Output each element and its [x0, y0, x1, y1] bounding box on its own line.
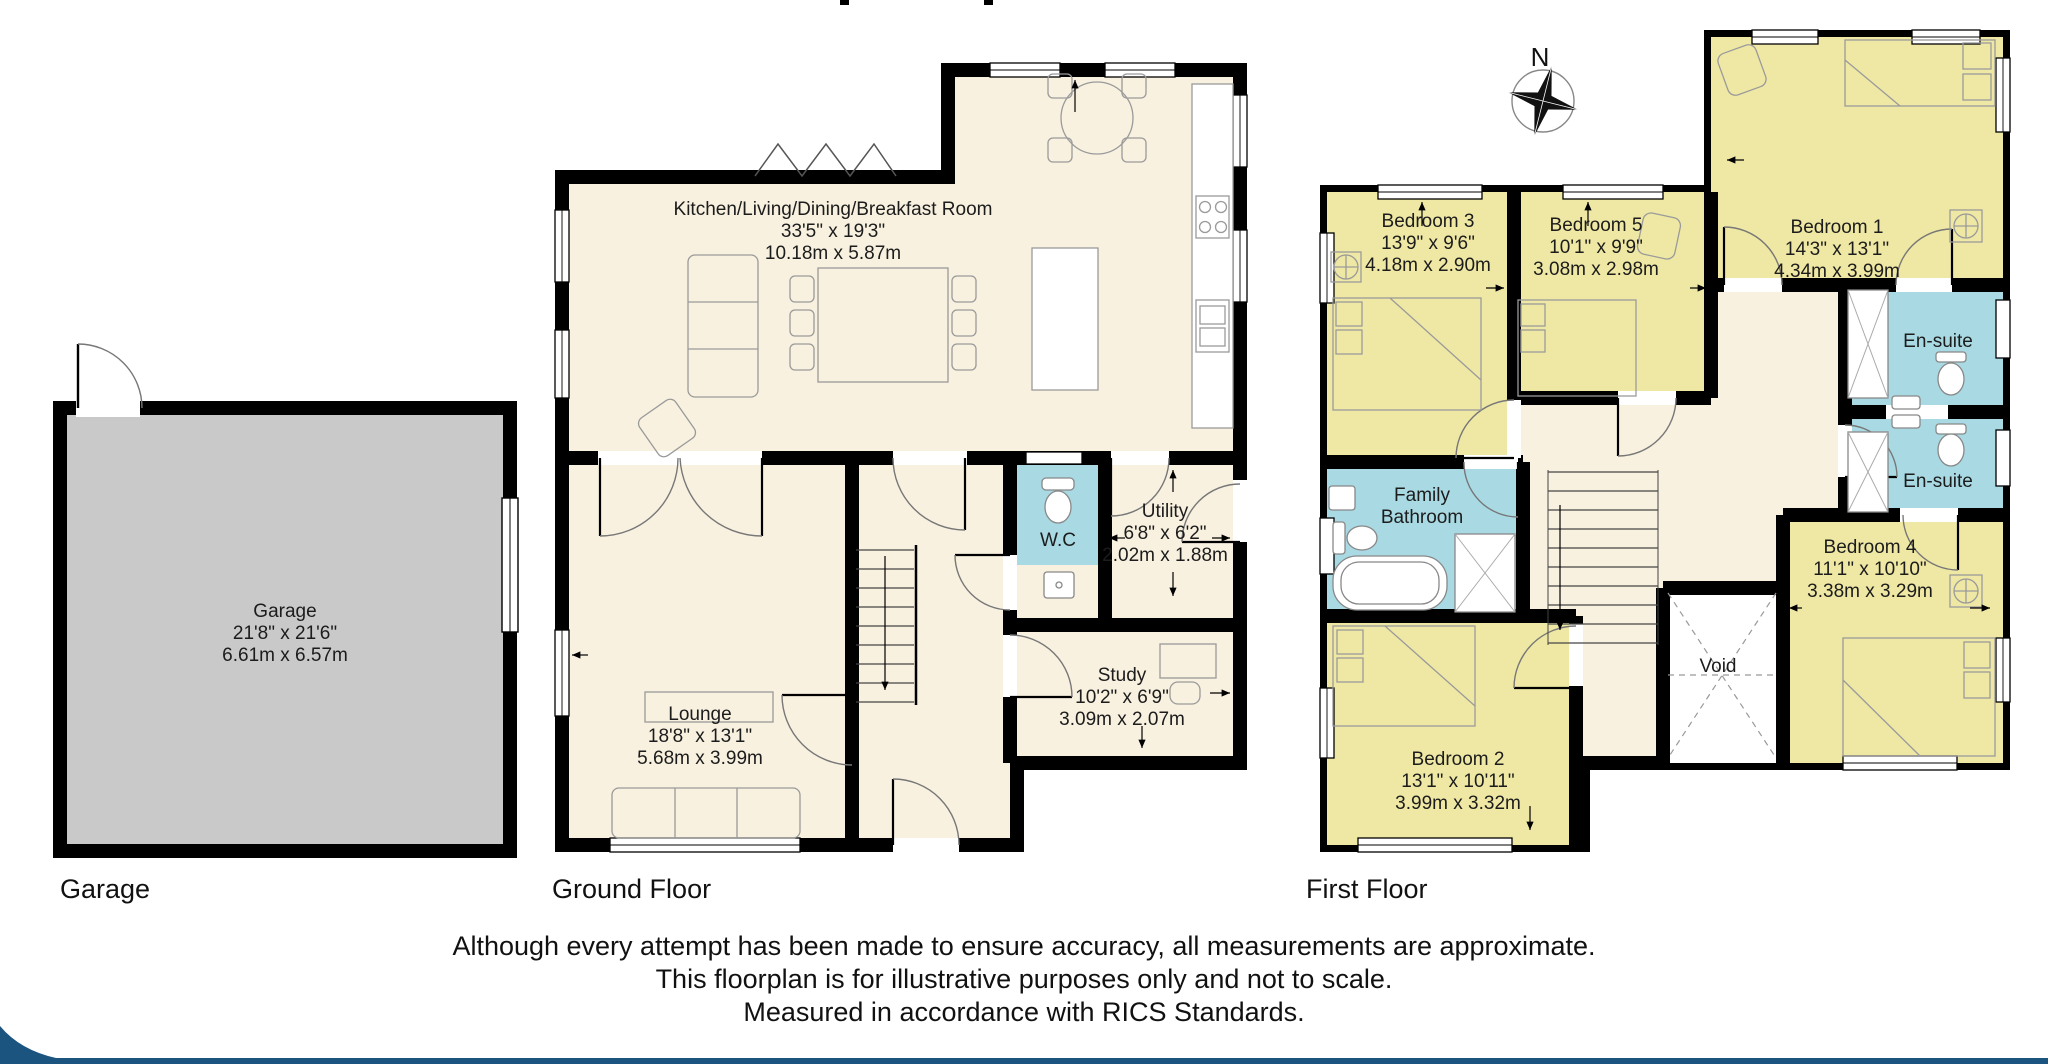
wc-room-label: W.C: [1040, 530, 1076, 552]
room-dims-imperial: 13'1" x 10'11": [1395, 771, 1521, 793]
room-name: Bedroom 5: [1533, 215, 1659, 237]
first-floor-plan: [1320, 30, 2010, 852]
bedroom2-room-label: Bedroom 2 13'1" x 10'11" 3.99m x 3.32m: [1395, 749, 1521, 815]
bedroom1-room-label: Bedroom 1 14'3" x 13'1" 4.34m x 3.99m: [1774, 217, 1900, 283]
ensuite-top-room-label: En-suite: [1903, 331, 1973, 353]
room-dims-imperial: 10'2" x 6'9": [1059, 687, 1185, 709]
void-label: Void: [1700, 656, 1737, 678]
room-name: Garage: [222, 601, 348, 623]
ensuite-bottom-room-label: En-suite: [1903, 471, 1973, 493]
caption-ground-floor: Ground Floor: [552, 874, 711, 905]
room-name: Utility: [1102, 501, 1228, 523]
room-dims-imperial: 13'9" x 9'6": [1365, 233, 1491, 255]
room-dims-imperial: 18'8" x 13'1": [637, 726, 763, 748]
room-dims-metric: 3.09m x 2.07m: [1059, 709, 1185, 731]
room-dims-metric: 10.18m x 5.87m: [674, 243, 993, 265]
floorplan-graphics: [0, 0, 2048, 1064]
room-dims-imperial: 21'8" x 21'6": [222, 623, 348, 645]
room-dims-metric: 5.68m x 3.99m: [637, 748, 763, 770]
room-dims-metric: 4.34m x 3.99m: [1774, 261, 1900, 283]
kitchen-room-label: Kitchen/Living/Dining/Breakfast Room 33'…: [674, 199, 993, 265]
room-name: Bedroom 3: [1365, 211, 1491, 233]
room-name: Void: [1700, 656, 1737, 678]
caption-first-floor: First Floor: [1306, 874, 1428, 905]
room-dims-metric: 3.99m x 3.32m: [1395, 793, 1521, 815]
room-dims-imperial: 6'8" x 6'2": [1102, 523, 1228, 545]
room-dims-metric: 4.18m x 2.90m: [1365, 255, 1491, 277]
room-name: Kitchen/Living/Dining/Breakfast Room: [674, 199, 993, 221]
bedroom4-room-label: Bedroom 4 11'1" x 10'10" 3.38m x 3.29m: [1807, 537, 1933, 603]
room-name: Study: [1059, 665, 1185, 687]
compass-north-label: N: [1531, 42, 1550, 73]
room-dims-imperial: 33'5" x 19'3": [674, 221, 993, 243]
disclaimer-line-2: This floorplan is for illustrative purpo…: [0, 963, 2048, 995]
floorplan-canvas: Garage 21'8" x 21'6" 6.61m x 6.57m Kitch…: [0, 0, 2048, 1064]
footer-swoosh: [0, 1026, 2048, 1064]
room-name: Bedroom 1: [1774, 217, 1900, 239]
clipped-title-remnant: [840, 0, 993, 5]
room-dims-imperial: 11'1" x 10'10": [1807, 559, 1933, 581]
room-dims-imperial: 14'3" x 13'1": [1774, 239, 1900, 261]
family-bathroom-room-label: Family Bathroom: [1352, 485, 1492, 529]
bedroom3-room-label: Bedroom 3 13'9" x 9'6" 4.18m x 2.90m: [1365, 211, 1491, 277]
study-room-label: Study 10'2" x 6'9" 3.09m x 2.07m: [1059, 665, 1185, 731]
room-name: Bedroom 2: [1395, 749, 1521, 771]
room-dims-metric: 6.61m x 6.57m: [222, 645, 348, 667]
lounge-room-label: Lounge 18'8" x 13'1" 5.68m x 3.99m: [637, 704, 763, 770]
caption-garage: Garage: [60, 874, 150, 905]
utility-room-label: Utility 6'8" x 6'2" 2.02m x 1.88m: [1102, 501, 1228, 567]
bedroom5-room-label: Bedroom 5 10'1" x 9'9" 3.08m x 2.98m: [1533, 215, 1659, 281]
disclaimer-line-3: Measured in accordance with RICS Standar…: [0, 996, 2048, 1028]
garage-plan: [60, 344, 518, 851]
room-name: W.C: [1040, 530, 1076, 552]
room-name: Family Bathroom: [1352, 485, 1492, 529]
room-name: Bedroom 4: [1807, 537, 1933, 559]
room-name: Lounge: [637, 704, 763, 726]
room-name: En-suite: [1903, 471, 1973, 493]
garage-room-label: Garage 21'8" x 21'6" 6.61m x 6.57m: [222, 601, 348, 667]
room-name: En-suite: [1903, 331, 1973, 353]
room-dims-imperial: 10'1" x 9'9": [1533, 237, 1659, 259]
room-dims-metric: 3.08m x 2.98m: [1533, 259, 1659, 281]
disclaimer-line-1: Although every attempt has been made to …: [0, 930, 2048, 962]
room-dims-metric: 2.02m x 1.88m: [1102, 545, 1228, 567]
room-dims-metric: 3.38m x 3.29m: [1807, 581, 1933, 603]
